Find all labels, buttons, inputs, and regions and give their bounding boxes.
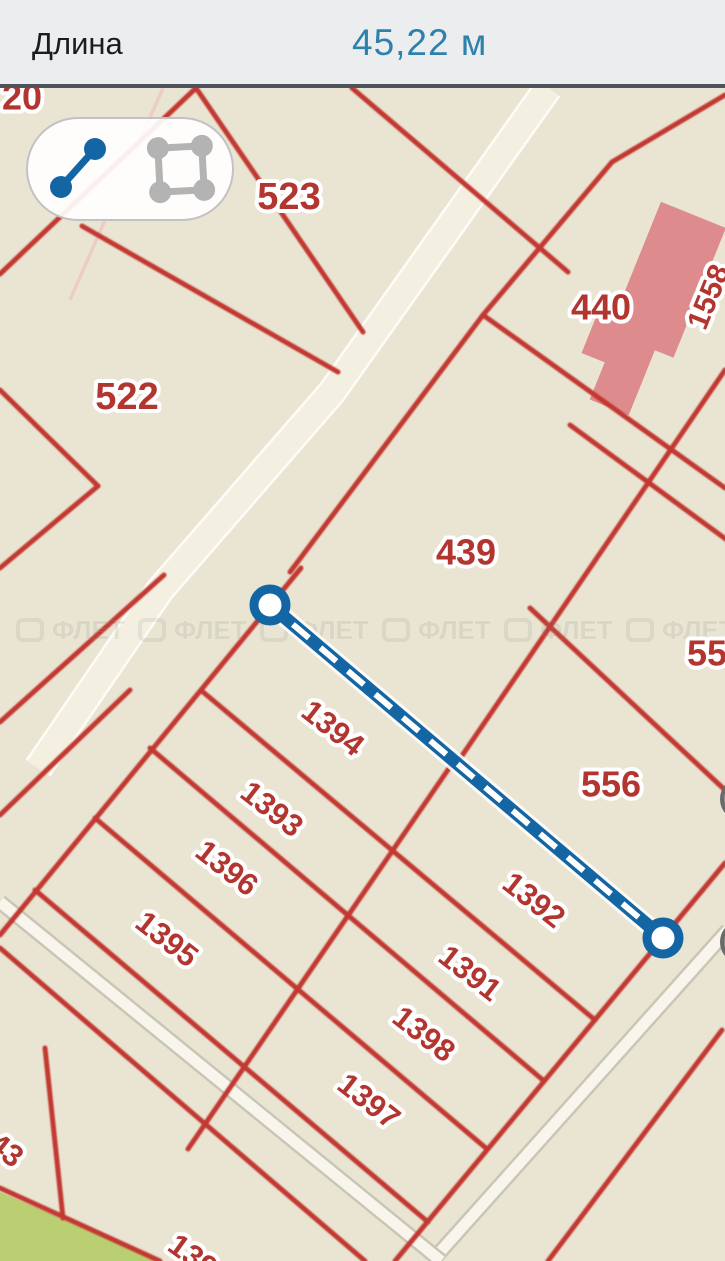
parcel-label: 1397 bbox=[331, 1066, 407, 1136]
svg-text:ФЛЕТ: ФЛЕТ bbox=[540, 615, 613, 645]
parcel-label: 43 bbox=[0, 1126, 30, 1175]
app-screen: ФЛЕТФЛЕТФЛЕТФЛЕТФЛЕТФЛЕТ 205235224401558… bbox=[0, 0, 725, 1261]
measure-end-handle[interactable] bbox=[647, 922, 679, 954]
parcel-label: 523 bbox=[257, 176, 320, 218]
length-value: 45,22 м bbox=[352, 22, 487, 64]
parcel-label: 439 bbox=[436, 532, 496, 573]
line-measure-button[interactable] bbox=[28, 119, 130, 219]
cadastral-map[interactable]: ФЛЕТФЛЕТФЛЕТФЛЕТФЛЕТФЛЕТ 205235224401558… bbox=[0, 88, 725, 1261]
area-measure-icon bbox=[143, 131, 219, 207]
parcel-label: 440 bbox=[571, 287, 631, 328]
parcel-label: 1398 bbox=[386, 999, 462, 1069]
parcel-label: 1393 bbox=[234, 774, 310, 844]
area-measure-button[interactable] bbox=[130, 119, 232, 219]
parcel-label: 1396 bbox=[189, 833, 265, 903]
svg-text:ФЛЕТ: ФЛЕТ bbox=[52, 615, 125, 645]
svg-text:ФЛЕТ: ФЛЕТ bbox=[418, 615, 491, 645]
parcel-label: 20 bbox=[2, 88, 42, 118]
watermark: ФЛЕТФЛЕТФЛЕТФЛЕТФЛЕТФЛЕТ bbox=[18, 615, 725, 645]
parcel-label: 139 bbox=[162, 1227, 224, 1261]
length-label: Длина bbox=[32, 26, 123, 62]
measure-tool-switcher bbox=[26, 117, 234, 221]
parcel-label: 1395 bbox=[129, 904, 205, 974]
measure-start-handle[interactable] bbox=[254, 589, 286, 621]
parcel-label: 1394 bbox=[295, 693, 371, 764]
parcel-label: 55 bbox=[687, 633, 725, 674]
parcel-label: 522 bbox=[95, 376, 158, 418]
parcel-label: 1392 bbox=[496, 865, 572, 935]
svg-text:ФЛЕТ: ФЛЕТ bbox=[174, 615, 247, 645]
parcel-label: 556 bbox=[581, 764, 641, 805]
line-measure-icon bbox=[43, 133, 115, 205]
measurement-header: Длина 45,22 м bbox=[0, 0, 725, 88]
